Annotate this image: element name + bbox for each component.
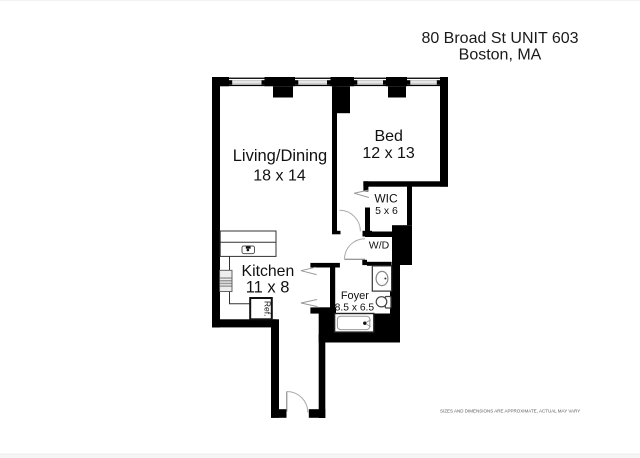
svg-text:WIC: WIC <box>374 191 398 205</box>
svg-text:Ref.: Ref. <box>262 301 272 317</box>
svg-text:Foyer: Foyer <box>341 290 369 302</box>
svg-text:W/D: W/D <box>369 239 390 251</box>
svg-text:80 Broad St UNIT 603: 80 Broad St UNIT 603 <box>421 30 578 47</box>
svg-text:Boston, MA: Boston, MA <box>459 47 542 64</box>
svg-text:SIZES AND DIMENSIONS ARE APPRO: SIZES AND DIMENSIONS ARE APPROXIMATE, AC… <box>440 408 580 413</box>
svg-text:5 x 6: 5 x 6 <box>375 205 398 217</box>
svg-text:Kitchen: Kitchen <box>242 263 295 280</box>
svg-text:11 x 8: 11 x 8 <box>246 279 290 297</box>
svg-text:18 x 14: 18 x 14 <box>253 168 306 185</box>
svg-text:Living/Dining: Living/Dining <box>233 147 327 165</box>
svg-text:8.5 x 6.5: 8.5 x 6.5 <box>335 303 375 314</box>
svg-text:Bed: Bed <box>374 128 402 145</box>
svg-text:12 x 13: 12 x 13 <box>362 145 415 162</box>
